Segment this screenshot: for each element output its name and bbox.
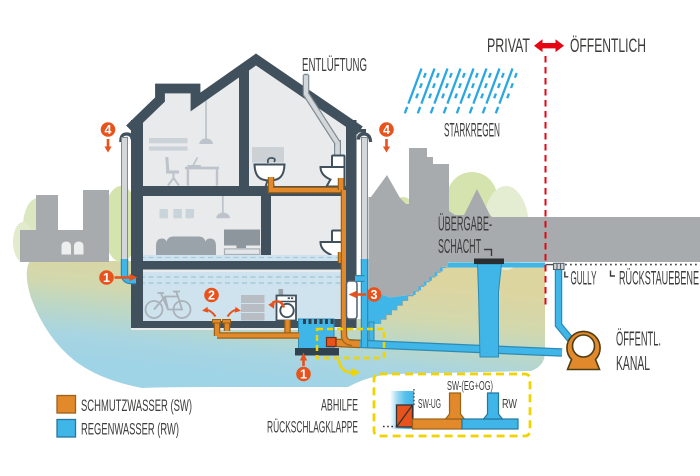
svg-text:ÖFFENTL.: ÖFFENTL. (616, 329, 661, 351)
svg-text:SW-(EG+OG): SW-(EG+OG) (447, 378, 493, 393)
svg-text:ABHILFE: ABHILFE (321, 397, 358, 415)
svg-text:RÜCKSTAUEBENE: RÜCKSTAUEBENE (619, 269, 699, 290)
svg-text:4: 4 (105, 123, 112, 137)
svg-text:ÖFFENTLICH: ÖFFENTLICH (570, 36, 646, 57)
svg-text:4: 4 (383, 123, 390, 137)
svg-text:3: 3 (371, 288, 378, 302)
svg-text:PRIVAT: PRIVAT (487, 36, 530, 57)
svg-text:2: 2 (208, 289, 215, 303)
svg-text:REGENWASSER (RW): REGENWASSER (RW) (81, 421, 179, 439)
svg-text:GULLY: GULLY (571, 269, 597, 290)
svg-text:RW: RW (502, 396, 518, 411)
svg-text:STARKREGEN: STARKREGEN (444, 121, 500, 142)
svg-text:ENTLÜFTUNG: ENTLÜFTUNG (302, 55, 367, 75)
svg-text:1: 1 (300, 368, 307, 382)
svg-text:1: 1 (103, 271, 110, 285)
svg-text:SCHMUTZWASSER (SW): SCHMUTZWASSER (SW) (81, 397, 192, 415)
svg-text:SW-UG: SW-UG (418, 396, 441, 411)
svg-text:ÜBERGABE-: ÜBERGABE- (438, 214, 492, 236)
svg-text:KANAL: KANAL (616, 353, 650, 375)
svg-text:RÜCKSCHLAGKLAPPE: RÜCKSCHLAGKLAPPE (267, 419, 358, 437)
svg-text:SCHACHT: SCHACHT (438, 236, 481, 258)
